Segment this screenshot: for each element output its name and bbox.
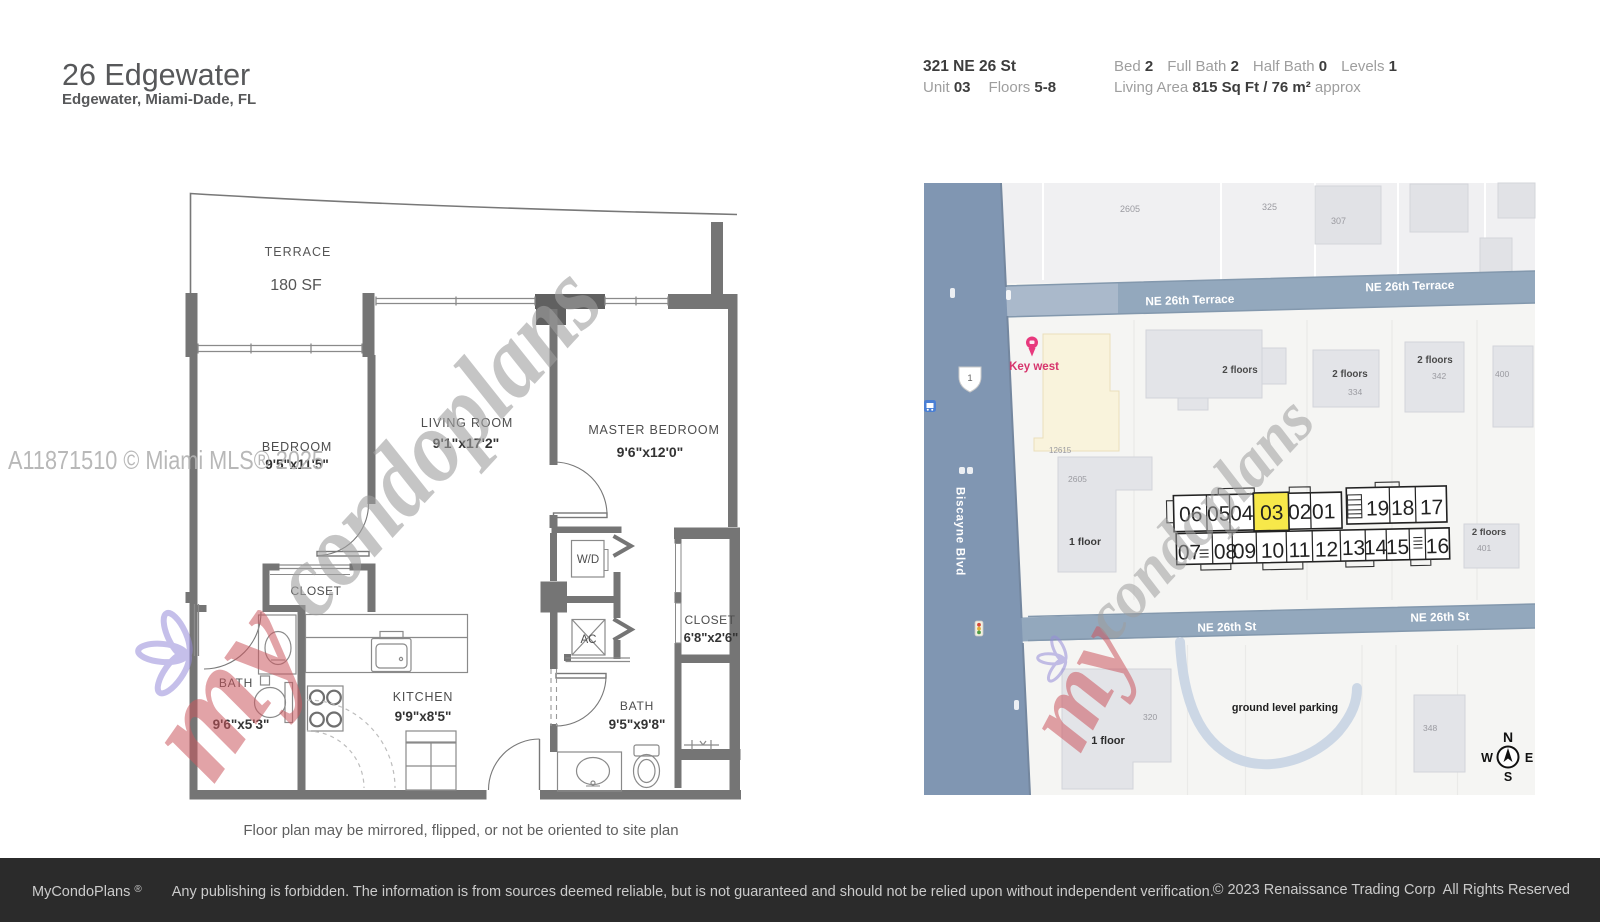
svg-text:2 floors: 2 floors (1332, 369, 1368, 380)
svg-text:342: 342 (1432, 371, 1446, 381)
svg-text:2 floors: 2 floors (1472, 527, 1506, 538)
svg-text:9'9"x8'5": 9'9"x8'5" (395, 709, 452, 724)
svg-text:1: 1 (967, 373, 972, 384)
svg-text:Floor plan may be mirrored, fl: Floor plan may be mirrored, flipped, or … (243, 822, 678, 839)
svg-text:6'8"x2'6": 6'8"x2'6" (684, 630, 739, 645)
svg-text:A11871510 © Miami MLS® 2025: A11871510 © Miami MLS® 2025 (8, 445, 324, 475)
svg-text:1 floor: 1 floor (1069, 536, 1101, 548)
svg-text:10: 10 (1261, 539, 1285, 562)
svg-text:2605: 2605 (1068, 474, 1087, 484)
svg-text:2 floors: 2 floors (1222, 365, 1258, 376)
svg-text:NE 26th Terrace: NE 26th Terrace (1145, 292, 1235, 309)
svg-text:TERRACE: TERRACE (265, 245, 332, 259)
svg-text:2 floors: 2 floors (1417, 355, 1453, 366)
svg-text:W/D: W/D (577, 554, 599, 566)
svg-text:18: 18 (1391, 497, 1415, 520)
svg-text:ground level parking: ground level parking (1232, 702, 1338, 714)
svg-text:BATH: BATH (620, 699, 654, 713)
svg-text:NE 26th Terrace: NE 26th Terrace (1365, 278, 1455, 295)
svg-text:N: N (1503, 729, 1513, 745)
svg-text:NE 26th St: NE 26th St (1197, 619, 1256, 635)
svg-text:AC: AC (581, 634, 597, 646)
svg-text:2605: 2605 (1120, 204, 1140, 214)
svg-text:MASTER BEDROOM: MASTER BEDROOM (588, 423, 719, 437)
svg-text:16: 16 (1426, 535, 1450, 558)
svg-text:E: E (1525, 751, 1533, 765)
svg-text:17: 17 (1420, 496, 1444, 519)
svg-text:NE 26th St: NE 26th St (1410, 609, 1469, 625)
svg-text:15: 15 (1386, 536, 1410, 559)
svg-text:Biscayne Blvd: Biscayne Blvd (954, 487, 966, 576)
svg-text:W: W (1481, 751, 1493, 765)
svg-text:13: 13 (1342, 537, 1366, 560)
svg-text:12615: 12615 (1049, 446, 1072, 455)
svg-text:03: 03 (1260, 501, 1284, 524)
svg-text:180 SF: 180 SF (270, 277, 322, 294)
svg-text:11: 11 (1288, 539, 1310, 562)
svg-text:348: 348 (1423, 723, 1437, 733)
svg-text:12: 12 (1315, 538, 1339, 561)
svg-text:334: 334 (1348, 387, 1362, 397)
svg-text:02: 02 (1288, 501, 1312, 524)
svg-text:9'5"x9'8": 9'5"x9'8" (609, 717, 666, 732)
svg-text:307: 307 (1331, 216, 1346, 226)
svg-text:KITCHEN: KITCHEN (393, 690, 453, 704)
svg-text:9'6"x12'0": 9'6"x12'0" (617, 444, 684, 460)
svg-text:320: 320 (1143, 712, 1157, 722)
svg-text:09: 09 (1233, 540, 1257, 563)
svg-text:01: 01 (1312, 500, 1336, 523)
svg-text:CLOSET: CLOSET (684, 613, 735, 627)
svg-text:401: 401 (1477, 543, 1491, 553)
svg-text:325: 325 (1262, 202, 1277, 212)
svg-text:400: 400 (1495, 369, 1509, 379)
svg-text:Key west: Key west (1009, 361, 1059, 373)
svg-text:14: 14 (1364, 536, 1388, 559)
svg-text:S: S (1504, 770, 1512, 784)
svg-text:19: 19 (1366, 497, 1390, 520)
